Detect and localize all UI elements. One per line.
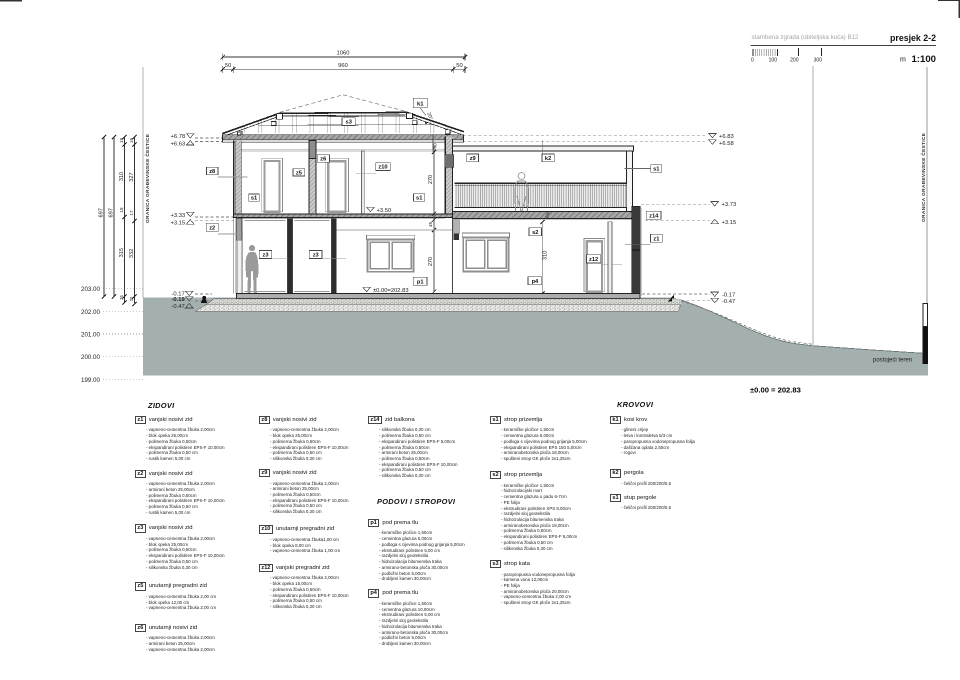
svg-text:1:100: 1:100 [911,54,936,65]
svg-text:±0.00 = 202.83: ±0.00 = 202.83 [750,386,801,395]
svg-text:0: 0 [751,58,754,64]
svg-text:+3.15: +3.15 [171,220,186,226]
svg-text:203.00: 203.00 [81,286,100,293]
svg-text:-0.19: -0.19 [172,297,186,303]
svg-text:k1: k1 [417,101,424,107]
svg-text:-0.17: -0.17 [722,293,735,299]
svg-text:200: 200 [790,58,799,64]
svg-text:z5: z5 [296,170,302,176]
svg-text:z3: z3 [262,253,268,259]
svg-text:1060: 1060 [337,51,350,57]
svg-text:k2: k2 [545,156,551,162]
svg-text:199.00: 199.00 [81,377,100,384]
svg-text:z12: z12 [589,257,598,263]
svg-text:z1: z1 [653,236,659,242]
svg-text:z8: z8 [209,169,215,175]
svg-text:315: 315 [119,248,125,257]
svg-text:-0.47: -0.47 [722,299,735,305]
svg-text:s2: s2 [532,230,538,236]
svg-text:35: 35 [119,295,124,300]
svg-text:310: 310 [543,251,549,260]
svg-text:697: 697 [99,208,105,217]
svg-text:postojeći teren: postojeći teren [873,358,912,364]
svg-text:z9: z9 [470,156,476,162]
svg-text:s1: s1 [251,196,257,202]
svg-text:z10: z10 [378,165,387,171]
svg-text:332: 332 [129,249,135,258]
svg-text:z3: z3 [313,253,319,259]
svg-text:+3.33: +3.33 [171,213,186,219]
svg-text:327: 327 [129,172,135,181]
svg-text:m: m [900,56,906,63]
svg-text:±0.00=202.83: ±0.00=202.83 [373,288,409,294]
svg-text:z6: z6 [320,157,326,163]
svg-text:697: 697 [109,208,115,217]
svg-text:GRANICA GRAĐEVINSKE ČESTICE: GRANICA GRAĐEVINSKE ČESTICE [920,132,927,222]
svg-text:s1: s1 [416,196,422,202]
svg-text:+3.50: +3.50 [377,208,392,214]
svg-text:310: 310 [119,172,125,181]
svg-text:270: 270 [428,257,434,266]
svg-text:s1: s1 [653,167,659,173]
svg-text:30: 30 [129,296,134,301]
svg-text:z14: z14 [649,213,659,219]
svg-text:100: 100 [769,58,778,64]
svg-text:201.00: 201.00 [81,331,100,338]
svg-text:200.00: 200.00 [81,354,100,361]
svg-text:stambena zgrada (obiteljska ku: stambena zgrada (obiteljska kuća) B12 [752,34,860,41]
svg-text:300: 300 [814,58,823,64]
svg-text:16: 16 [129,138,134,144]
svg-text:+3.73: +3.73 [722,202,737,208]
svg-text:s3: s3 [346,120,352,126]
svg-text:+6.83: +6.83 [719,134,734,140]
svg-text:17: 17 [129,210,134,216]
svg-text:p4: p4 [532,279,539,285]
svg-text:18: 18 [119,207,124,213]
svg-text:-0.47: -0.47 [172,304,185,310]
svg-text:+3.15: +3.15 [722,220,737,226]
svg-text:+6.58: +6.58 [719,141,734,147]
svg-text:45: 45 [428,222,434,228]
svg-text:202.00: 202.00 [81,309,100,316]
svg-text:presjek 2-2: presjek 2-2 [890,33,936,43]
svg-text:p1: p1 [417,280,424,286]
svg-text:18: 18 [119,138,124,144]
svg-text:40: 40 [433,143,439,149]
svg-text:50: 50 [456,63,462,69]
svg-text:z2: z2 [209,225,215,231]
svg-text:270: 270 [428,175,434,184]
svg-text:960: 960 [338,63,348,69]
svg-text:+6.63: +6.63 [171,141,186,147]
svg-text:+6.78: +6.78 [171,134,186,140]
svg-text:50: 50 [225,63,231,69]
svg-text:GRANICA GRAĐEVINSKE ČESTICE: GRANICA GRAĐEVINSKE ČESTICE [144,133,151,223]
